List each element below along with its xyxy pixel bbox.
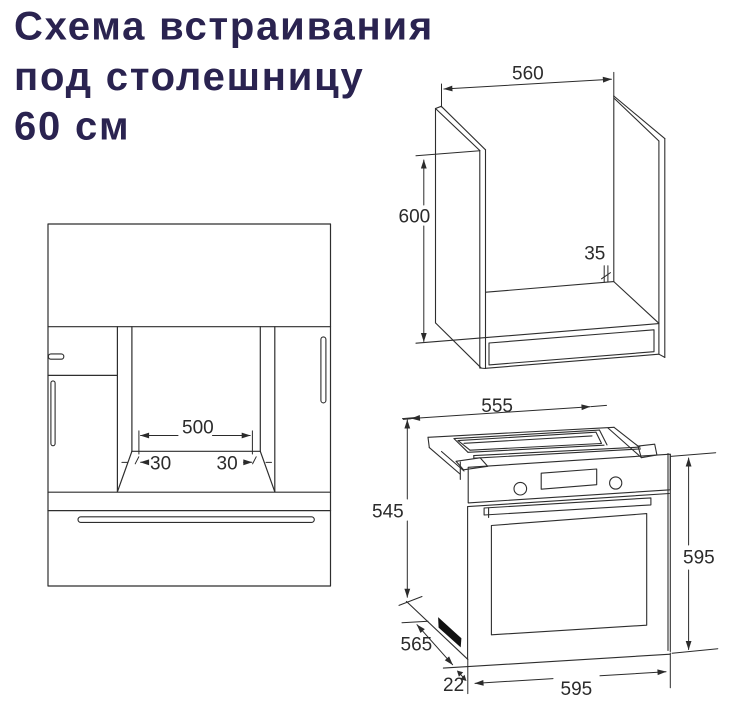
svg-text:60 см: 60 см <box>14 105 130 149</box>
svg-text:560: 560 <box>512 64 544 85</box>
svg-text:Схема встраивания: Схема встраивания <box>14 5 434 49</box>
svg-text:595: 595 <box>561 679 593 700</box>
svg-text:30: 30 <box>150 453 171 474</box>
svg-text:600: 600 <box>399 207 431 228</box>
svg-text:30: 30 <box>217 453 238 474</box>
svg-text:595: 595 <box>683 547 715 568</box>
svg-text:545: 545 <box>372 501 404 522</box>
svg-text:под столешницу: под столешницу <box>14 55 365 99</box>
svg-text:22: 22 <box>443 675 464 696</box>
svg-text:35: 35 <box>584 244 605 265</box>
svg-text:500: 500 <box>182 418 214 439</box>
svg-text:565: 565 <box>401 635 433 656</box>
svg-text:555: 555 <box>481 396 513 417</box>
